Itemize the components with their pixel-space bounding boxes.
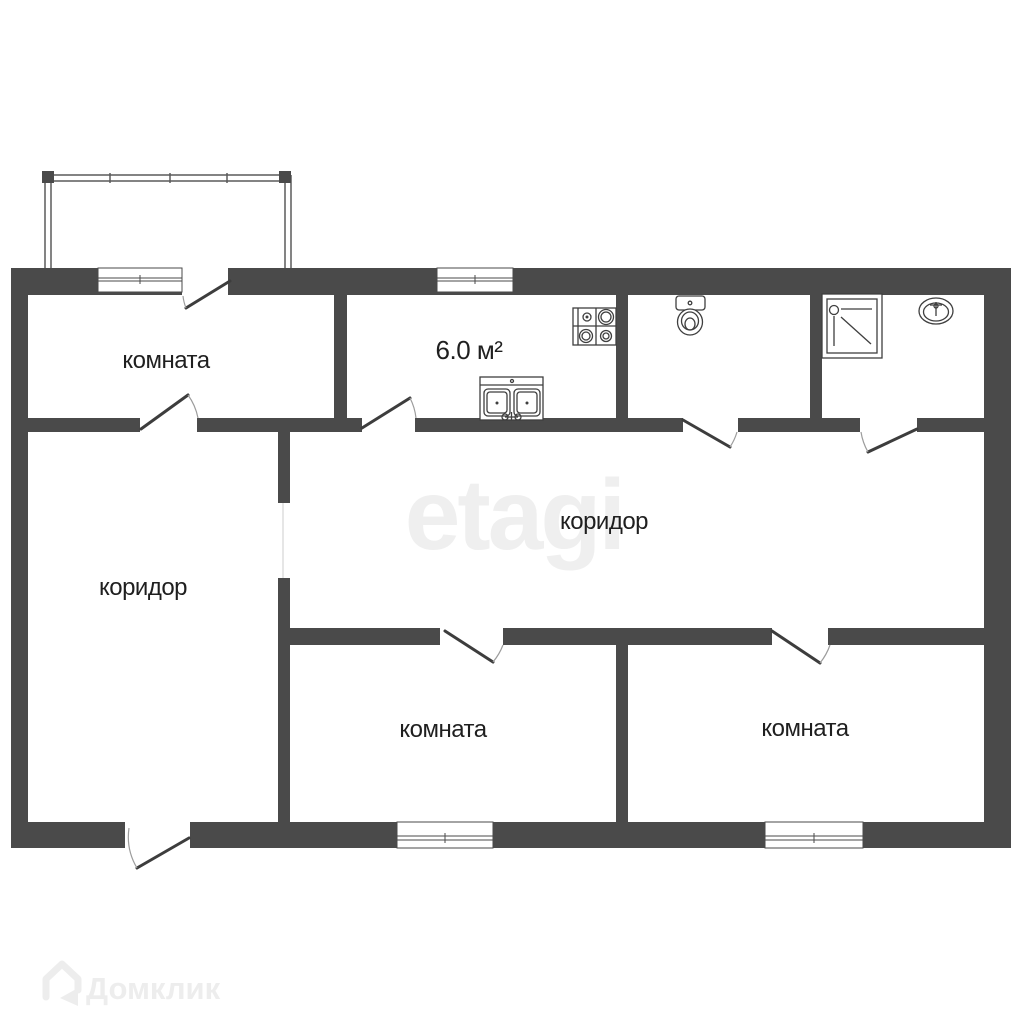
room2-door-opening bbox=[440, 628, 503, 645]
stove-icon bbox=[573, 308, 616, 345]
label-corridor-main: коридор bbox=[560, 508, 648, 535]
wall-corridor-left bbox=[278, 432, 290, 822]
fixtures bbox=[480, 294, 953, 420]
house-icon bbox=[46, 964, 78, 1006]
floor-plan-drawing: etagi bbox=[0, 0, 1024, 1024]
window-kitchen bbox=[437, 268, 513, 292]
shower-icon bbox=[822, 294, 882, 358]
label-kitchen-area: 6.0 м² bbox=[436, 335, 504, 365]
kitchen-sink-icon bbox=[480, 377, 543, 420]
label-corridor-left: коридор bbox=[99, 574, 187, 601]
outer-wall-right bbox=[984, 268, 1011, 848]
window-room-bottom-right bbox=[765, 822, 863, 848]
washbasin-icon bbox=[919, 298, 953, 324]
balcony-door-opening bbox=[182, 268, 228, 295]
balcony-corner-post bbox=[279, 171, 291, 183]
outer-wall-left bbox=[11, 268, 28, 848]
wall-room1-kitchen bbox=[334, 295, 347, 418]
window-room-bottom-middle bbox=[397, 822, 493, 848]
doors bbox=[128, 281, 917, 868]
logo-wordmark: Домклик bbox=[86, 971, 221, 1006]
label-room-top-left: комната bbox=[122, 347, 210, 374]
label-room-bottom-middle: комната bbox=[399, 716, 487, 743]
bath-door-opening bbox=[860, 418, 917, 432]
window-room-top-left bbox=[98, 268, 182, 292]
balcony-glazing bbox=[42, 171, 291, 268]
bath-door bbox=[861, 429, 917, 452]
wall-kitchen-toilet bbox=[616, 295, 628, 418]
balcony-corner-post bbox=[42, 171, 54, 183]
wall-bottom-rooms bbox=[616, 645, 628, 822]
corridor-passage-opening bbox=[278, 503, 290, 578]
wall-corridor-bottom bbox=[278, 628, 984, 645]
toilet-icon bbox=[676, 296, 705, 335]
domclick-logo: Домклик bbox=[46, 964, 221, 1006]
label-room-bottom-right: комната bbox=[761, 715, 849, 742]
kitchen-door-opening bbox=[362, 418, 415, 432]
wall-toilet-bath bbox=[810, 295, 822, 418]
floor-plan-page: etagi bbox=[0, 0, 1024, 1024]
